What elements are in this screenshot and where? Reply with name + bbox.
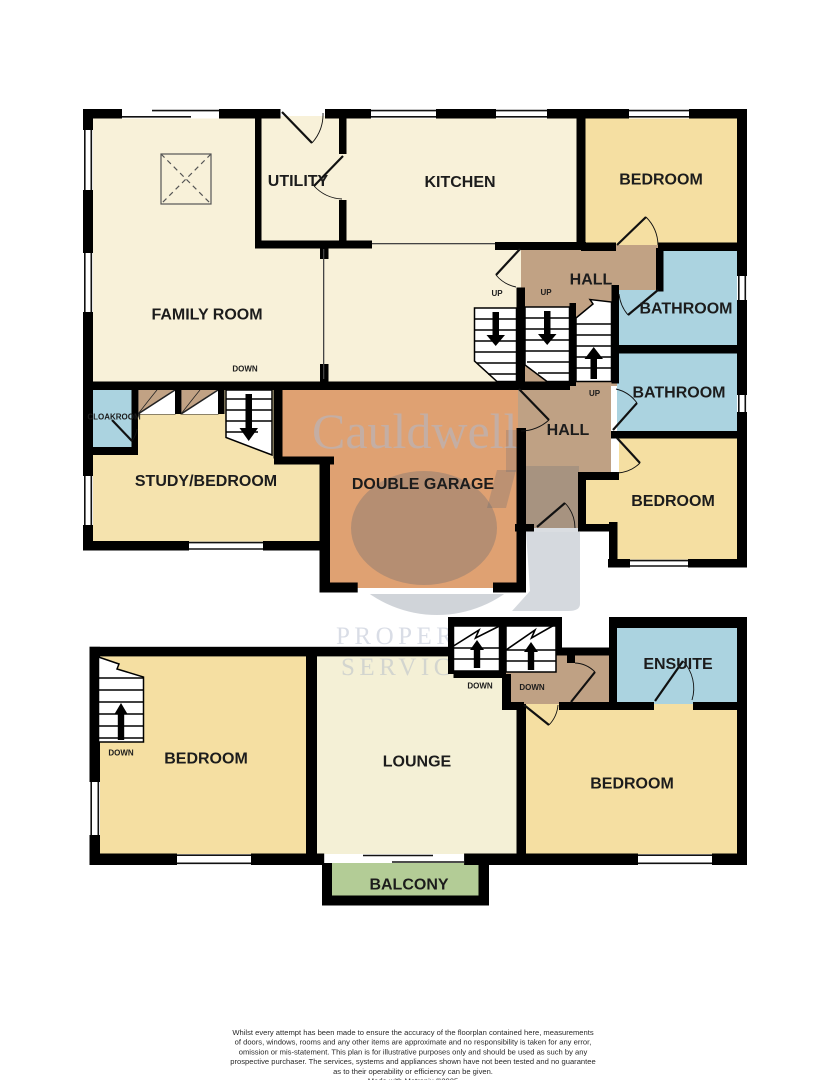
svg-text:STUDY/BEDROOM: STUDY/BEDROOM [135, 473, 277, 490]
svg-text:UP: UP [491, 289, 503, 298]
svg-text:Made with Metropix ©2025: Made with Metropix ©2025 [368, 1077, 458, 1080]
svg-text:BALCONY: BALCONY [369, 877, 448, 894]
svg-text:BATHROOM: BATHROOM [632, 385, 725, 402]
svg-text:Cauldwell: Cauldwell [312, 403, 518, 459]
svg-text:BEDROOM: BEDROOM [631, 493, 715, 510]
svg-text:FAMILY ROOM: FAMILY ROOM [151, 307, 262, 324]
svg-text:DOWN: DOWN [108, 749, 134, 758]
svg-text:HALL: HALL [547, 422, 590, 439]
svg-text:LOUNGE: LOUNGE [383, 754, 452, 771]
svg-text:ENSUITE: ENSUITE [643, 656, 713, 673]
svg-text:DOWN: DOWN [519, 683, 545, 692]
svg-text:as to their operability or eff: as to their operability or efficiency ca… [333, 1067, 493, 1076]
svg-text:DOUBLE GARAGE: DOUBLE GARAGE [352, 476, 495, 493]
svg-text:BEDROOM: BEDROOM [164, 751, 248, 768]
svg-text:BEDROOM: BEDROOM [590, 776, 674, 793]
svg-text:BEDROOM: BEDROOM [619, 172, 703, 189]
svg-text:DOWN: DOWN [467, 682, 493, 691]
svg-text:HALL: HALL [570, 272, 613, 289]
svg-text:DOWN: DOWN [232, 365, 258, 374]
svg-text:UP: UP [589, 389, 601, 398]
svg-text:Whilst every attempt has been: Whilst every attempt has been made to en… [232, 1028, 594, 1037]
svg-text:KITCHEN: KITCHEN [424, 174, 495, 191]
svg-text:prospective purchaser. The ser: prospective purchaser. The services, sys… [230, 1057, 595, 1066]
svg-text:UTILITY: UTILITY [268, 173, 329, 190]
svg-text:UP: UP [540, 288, 552, 297]
svg-text:omission or mis-statement. Thi: omission or mis-statement. This plan is … [239, 1047, 588, 1056]
svg-text:of doors, windows, rooms and a: of doors, windows, rooms and any other i… [235, 1038, 592, 1047]
svg-text:CLOAKROOM: CLOAKROOM [87, 413, 141, 422]
svg-text:BATHROOM: BATHROOM [639, 301, 732, 318]
